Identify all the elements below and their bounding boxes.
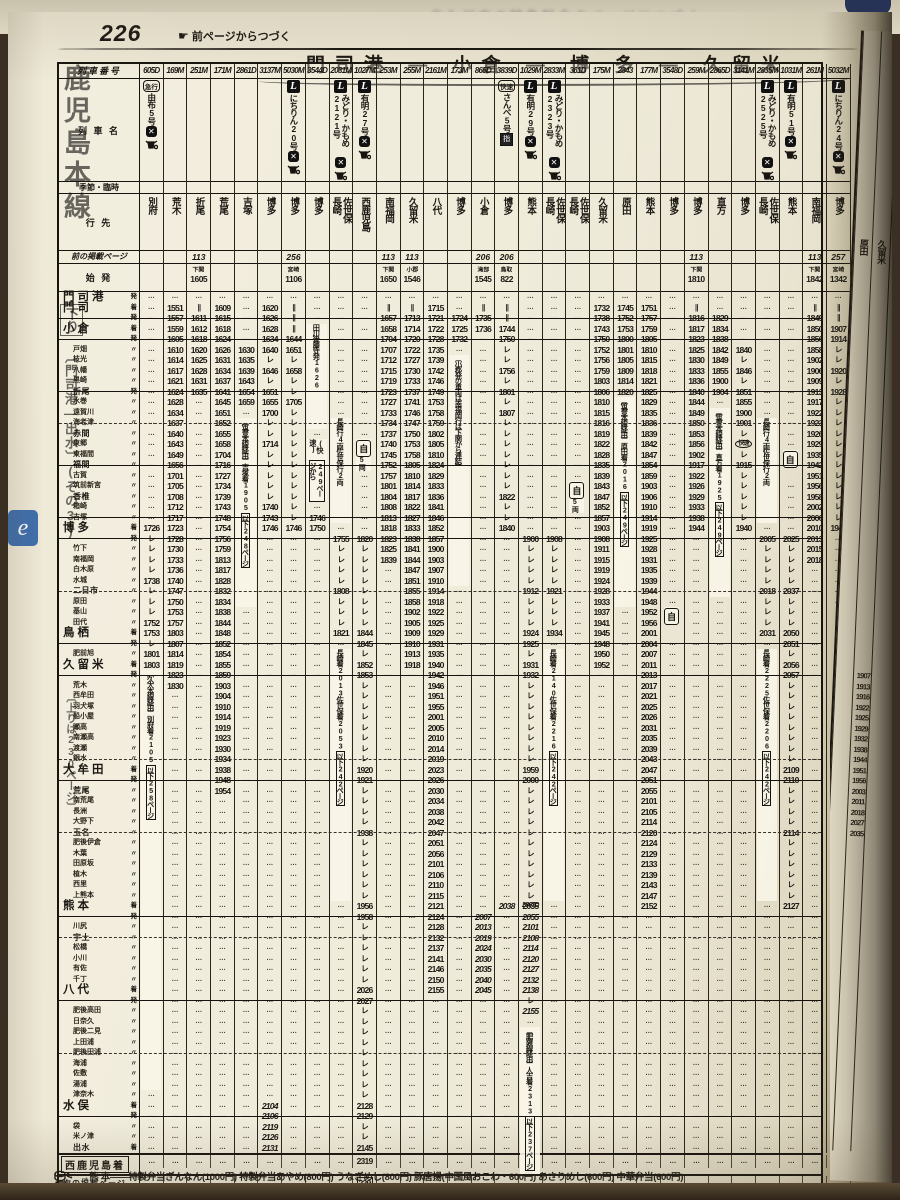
time-cell: …: [187, 807, 210, 818]
time-cell: 1643: [164, 439, 187, 450]
time-cell: 1956: [803, 481, 826, 492]
time-cell: …: [803, 1027, 826, 1038]
time-cell: …: [803, 744, 826, 755]
destination-text: 熊本: [526, 197, 536, 251]
season-cell: [140, 182, 163, 194]
train-column: 2865D直方……1829183418381842184918551900190…: [709, 64, 733, 1153]
time-cell: …: [732, 985, 755, 996]
group-rule-dashed: [59, 591, 821, 592]
time-cell: …: [235, 324, 258, 335]
time-cell: レ: [780, 807, 803, 818]
time-cell: 1854: [211, 649, 234, 660]
time-cell: 2133: [637, 859, 660, 870]
time-cell: …: [543, 1069, 566, 1080]
arrival-departure-mark: 〃: [131, 450, 138, 461]
train-name-box: [803, 79, 826, 182]
time-cell: 1646: [258, 366, 281, 377]
time-cell: 2155: [519, 1006, 542, 1017]
time-cell: …: [495, 1027, 518, 1038]
station-row: 水巻〃: [59, 397, 139, 408]
time-cell: …: [401, 922, 424, 933]
time-cell: …: [756, 975, 779, 986]
time-cell: 1753: [424, 397, 447, 408]
time-cell: …: [756, 1006, 779, 1017]
time-cell: …: [495, 1143, 518, 1154]
prev-page-cell: [519, 251, 542, 264]
time-cell: 1752: [140, 618, 163, 629]
time-cell: 1926: [803, 429, 826, 440]
time-cell: レ: [732, 481, 755, 492]
time-cell: 1817: [211, 565, 234, 576]
time-cell: 1750: [306, 523, 329, 534]
season-cell: [661, 182, 684, 194]
prev-page-cell: [661, 251, 684, 264]
time-cell: …: [330, 1059, 353, 1070]
time-cell: …: [566, 859, 589, 870]
arrival-departure-mark: 〃: [131, 744, 138, 755]
time-cell: レ: [353, 607, 376, 618]
time-column-body: …∥17131714172017221727173017331737174117…: [401, 292, 424, 1153]
time-cell: …: [780, 1080, 803, 1091]
time-cell: …: [685, 544, 708, 555]
time-cell: …: [637, 1143, 660, 1154]
time-cell: …: [685, 880, 708, 891]
time-cell: …: [756, 408, 779, 419]
time-cell: 2138: [519, 985, 542, 996]
time-cell: …: [756, 1069, 779, 1080]
time-cell: …: [330, 954, 353, 965]
final-arrival-cell: …: [164, 1155, 188, 1168]
time-cell: …: [235, 964, 258, 975]
time-cell: 2143: [637, 880, 660, 891]
time-column-body: …∥17351736…………………………………………………………………………………: [472, 292, 495, 1153]
station-row: 西里〃: [59, 880, 139, 891]
station-name: 渡瀬: [73, 744, 87, 755]
time-cell: 1746: [424, 376, 447, 387]
arrival-departure-mark: 〃: [131, 922, 138, 933]
prev-page-cell: [330, 251, 353, 264]
time-cell: …: [566, 408, 589, 419]
time-cell: …: [306, 807, 329, 818]
time-cell: …: [709, 1101, 732, 1112]
time-cell: …: [187, 607, 210, 618]
time-cell: …: [258, 891, 281, 902]
destination-text: 西鹿児島: [360, 197, 370, 251]
time-cell: …: [614, 1027, 637, 1038]
origin-cell: [258, 264, 281, 292]
time-cell: レ: [519, 649, 542, 660]
train-column: 175M久留米…17321738174317501752175617591803…: [590, 64, 614, 1153]
station-row: 有佐〃: [59, 964, 139, 975]
time-cell: 1841: [424, 502, 447, 513]
time-cell: …: [566, 292, 589, 303]
time-cell: 1859: [637, 471, 660, 482]
time-cell: …: [803, 723, 826, 734]
time-cell: 2035: [472, 964, 495, 975]
time-cell: 2101: [637, 796, 660, 807]
route-note: 長崎行4両佐世保行2両: [331, 418, 351, 523]
time-cell: 1751: [637, 303, 660, 314]
time-cell: 1715: [377, 366, 400, 377]
route-note: 長崎行4両佐世保行2両: [757, 418, 777, 523]
time-cell: …: [637, 943, 660, 954]
time-cell: …: [566, 1006, 589, 1017]
time-cell: …: [472, 345, 495, 356]
origin-cell: [424, 264, 447, 292]
prev-page-cell: [566, 251, 589, 264]
time-cell: …: [780, 502, 803, 513]
time-cell: …: [614, 1069, 637, 1080]
time-cell: …: [685, 838, 708, 849]
final-arrival-cell: …: [330, 1155, 354, 1168]
time-cell: 1849: [685, 408, 708, 419]
time-cell: …: [401, 1090, 424, 1101]
time-cell: …: [709, 859, 732, 870]
time-cell: …: [661, 817, 684, 828]
time-cell: …: [495, 796, 518, 807]
time-cell: …: [401, 1038, 424, 1049]
time-cell: …: [803, 607, 826, 618]
arrival-departure-mark: 着: [131, 523, 138, 534]
time-cell: …: [590, 691, 613, 702]
station-row: 黒崎〃: [59, 376, 139, 387]
train-name: 有明51号: [786, 94, 795, 135]
time-cell: …: [590, 681, 613, 692]
time-cell: …: [401, 954, 424, 965]
time-cell: …: [211, 954, 234, 965]
time-cell: …: [614, 870, 637, 881]
time-cell: …: [448, 838, 471, 849]
final-arrival-cell: …: [709, 1155, 733, 1168]
time-cell: レ: [353, 943, 376, 954]
time-cell: …: [543, 954, 566, 965]
destination-cell: 博多: [282, 194, 305, 251]
time-cell: …: [590, 1038, 613, 1049]
time-cell: …: [803, 565, 826, 576]
time-cell: 1626: [211, 345, 234, 356]
time-cell: …: [614, 1122, 637, 1133]
time-cell: レ: [732, 355, 755, 366]
time-cell: レ: [756, 618, 779, 629]
time-cell: …: [685, 859, 708, 870]
group-rule: [59, 465, 821, 466]
time-cell: …: [543, 1006, 566, 1017]
time-cell: …: [377, 1069, 400, 1080]
train-name-cell: [164, 79, 187, 182]
station-row: 八幡〃: [59, 366, 139, 377]
time-cell: …: [164, 985, 187, 996]
train-name-cell: [590, 79, 613, 182]
arrival-departure-mark: 〃: [131, 1027, 138, 1038]
time-cell: …: [709, 765, 732, 776]
time-cell: …: [187, 660, 210, 671]
time-cell: …: [140, 345, 163, 356]
group-rule: [59, 1116, 821, 1117]
final-arrival-cell: …: [187, 1155, 211, 1168]
time-cell: レ: [495, 481, 518, 492]
time-cell: …: [519, 502, 542, 513]
time-cell: …: [732, 943, 755, 954]
time-cell: …: [377, 891, 400, 902]
l-limited-express-icon: L: [287, 80, 300, 93]
time-cell: …: [448, 723, 471, 734]
buffet-pot-icon: [145, 137, 158, 150]
time-cell: 1727: [377, 397, 400, 408]
station-name: 木葉: [73, 849, 87, 860]
time-column-body: …174517521753180018011805180918141820…………: [614, 292, 637, 1153]
station-row: 東福間〃: [59, 450, 139, 461]
time-cell: レ: [780, 880, 803, 891]
destination: 別府: [140, 194, 163, 251]
facing-destination: 久留米: [875, 239, 889, 264]
time-cell: [780, 471, 803, 482]
time-cell: …: [424, 292, 447, 303]
time-cell: …: [661, 408, 684, 419]
time-cell: …: [164, 880, 187, 891]
time-cell: 2024: [472, 943, 495, 954]
time-cell: …: [401, 691, 424, 702]
train-column: 2861D吉塚……………163016351639164316541659……………: [235, 64, 259, 1153]
station-row: 佐敷〃: [59, 1069, 139, 1080]
time-cell: …: [306, 723, 329, 734]
time-cell: …: [235, 649, 258, 660]
destination: 原田: [614, 194, 637, 251]
time-cell: 1732: [590, 303, 613, 314]
facing-time-cell: 1907: [855, 671, 872, 682]
time-cell: 1924: [590, 576, 613, 587]
time-cell: 1651: [211, 408, 234, 419]
time-cell: …: [187, 492, 210, 503]
arrival-departure-mark: 〃: [131, 849, 138, 860]
time-cell: …: [401, 702, 424, 713]
time-cell: 1700: [258, 408, 281, 419]
time-cell: …: [306, 1080, 329, 1091]
time-cell: …: [566, 597, 589, 608]
arrival-departure-mark: 〃: [131, 1038, 138, 1049]
time-cell: …: [661, 481, 684, 492]
time-cell: 1651: [282, 345, 305, 356]
time-cell: レ: [353, 565, 376, 576]
destination: 博多: [448, 194, 471, 251]
time-cell: …: [187, 471, 210, 482]
time-cell: …: [472, 838, 495, 849]
time-cell: …: [709, 292, 732, 303]
time-cell: …: [306, 765, 329, 776]
time-cell: 1944: [685, 523, 708, 534]
time-cell: …: [164, 292, 187, 303]
station-row: 水俣着: [59, 1101, 139, 1112]
time-cell: 2119: [258, 1122, 281, 1133]
time-cell: …: [353, 376, 376, 387]
time-cell: …: [732, 1132, 755, 1143]
time-cell: …: [732, 576, 755, 587]
arrival-departure-mark: 〃: [131, 943, 138, 954]
time-cell: …: [780, 439, 803, 450]
time-column-body: …173217381743175017521756175918031806181…: [590, 292, 613, 1153]
destination-cell: 博多: [495, 194, 518, 251]
station-name: 八代: [63, 985, 92, 996]
time-cell: 1902: [401, 607, 424, 618]
arrival-departure-mark: 〃: [131, 712, 138, 723]
time-cell: …: [401, 765, 424, 776]
train-name-box: Lみどり・かもめ2323号✕: [543, 79, 566, 182]
time-cell: …: [685, 576, 708, 587]
time-cell: …: [187, 702, 210, 713]
arrival-departure-mark: 〃: [131, 618, 138, 629]
time-cell: …: [756, 1090, 779, 1101]
time-cell: …: [590, 964, 613, 975]
final-arrival-cell: …: [803, 1155, 827, 1168]
time-cell: …: [164, 807, 187, 818]
time-cell: …: [495, 786, 518, 797]
time-cell: …: [732, 733, 755, 744]
time-cell: 1931: [519, 660, 542, 671]
time-cell: …: [661, 355, 684, 366]
route-note: 〔筑豊本線経由〕吉塚着1905以下248ページ: [236, 418, 256, 607]
time-cell: …: [543, 397, 566, 408]
time-cell: …: [803, 870, 826, 881]
route-note-text: (快速): [310, 439, 324, 458]
time-cell: …: [685, 660, 708, 671]
time-cell: …: [187, 964, 210, 975]
station-row: 西牟田〃: [59, 691, 139, 702]
train-number: 361D: [566, 64, 589, 79]
time-cell: …: [235, 817, 258, 828]
arrival-departure-mark: 着: [131, 628, 138, 639]
time-cell: 1746: [401, 408, 424, 419]
route-note-text: 〔久大本線経由〕別府着2105: [147, 670, 154, 763]
time-cell: …: [258, 744, 281, 755]
rapid-service-badge: 快速: [735, 440, 751, 448]
time-cell: …: [685, 1017, 708, 1028]
time-cell: …: [661, 744, 684, 755]
time-cell: …: [377, 1080, 400, 1091]
time-cell: …: [709, 817, 732, 828]
time-cell: …: [448, 1027, 471, 1038]
destination-row-label-label: 行 先: [59, 194, 139, 250]
time-cell: レ: [353, 870, 376, 881]
time-cell: …: [614, 807, 637, 818]
time-cell: 1955: [424, 702, 447, 713]
time-cell: 1740: [164, 576, 187, 587]
time-cell: …: [211, 901, 234, 912]
destination-text: 博多: [668, 197, 678, 251]
time-cell: …: [709, 303, 732, 314]
non-reserved-cars-mark: 自: [664, 607, 679, 625]
time-cell: レ: [780, 870, 803, 881]
time-cell: …: [472, 859, 495, 870]
origin-cell: [732, 264, 755, 292]
time-cell: …: [377, 859, 400, 870]
time-cell: …: [211, 1038, 234, 1049]
time-cell: …: [330, 1132, 353, 1143]
time-cell: …: [685, 1027, 708, 1038]
time-cell: 1637: [211, 376, 234, 387]
time-cell: レ: [519, 870, 542, 881]
time-cell: …: [566, 576, 589, 587]
station-name: 筑前新宮: [73, 481, 101, 492]
time-cell: …: [258, 807, 281, 818]
time-cell: 1844: [211, 618, 234, 629]
time-cell: …: [732, 1143, 755, 1154]
time-cell: …: [590, 954, 613, 965]
time-cell: …: [235, 1027, 258, 1038]
time-cell: …: [306, 544, 329, 555]
time-cell: 1631: [187, 376, 210, 387]
destination-text: 小倉: [478, 197, 488, 251]
time-cell: 1858: [401, 597, 424, 608]
time-cell: …: [732, 849, 755, 860]
prev-page-cell: 206: [495, 251, 518, 264]
time-cell: …: [187, 1101, 210, 1112]
time-cell: …: [661, 492, 684, 503]
train-name-box: Lにちりん20号✕: [282, 79, 305, 182]
destination-cell: 原田: [614, 194, 637, 251]
time-column-body: ……………………………………………………………1908レレレレ1921レレレ19…: [543, 292, 566, 1153]
time-cell: …: [732, 1069, 755, 1080]
time-cell: …: [235, 859, 258, 870]
season-cell: [566, 182, 589, 194]
station-name: 赤間: [73, 429, 90, 440]
time-cell: …: [424, 1132, 447, 1143]
final-arrival-cell: …: [756, 1155, 780, 1168]
time-cell: …: [590, 1132, 613, 1143]
station-name: 米ノ津: [73, 1132, 94, 1143]
time-cell: ∥: [685, 303, 708, 314]
station-row: 大野下〃: [59, 817, 139, 828]
origin-station: 下関: [189, 265, 209, 274]
time-cell: …: [353, 355, 376, 366]
time-cell: …: [235, 796, 258, 807]
time-cell: 2011: [637, 660, 660, 671]
time-cell: …: [803, 292, 826, 303]
train-name-cell: [637, 79, 660, 182]
time-cell: …: [803, 1006, 826, 1017]
time-cell: 1951: [803, 471, 826, 482]
time-cell: …: [756, 366, 779, 377]
time-cell: …: [401, 870, 424, 881]
time-cell: 1940: [732, 523, 755, 534]
train-number: 3137M: [258, 64, 281, 79]
time-cell: …: [756, 292, 779, 303]
time-cell: レ: [780, 565, 803, 576]
time-cell: …: [164, 796, 187, 807]
time-cell: …: [330, 1080, 353, 1091]
time-cell: …: [377, 817, 400, 828]
time-cell: …: [709, 807, 732, 818]
group-rule: [59, 517, 821, 518]
time-cell: …: [566, 723, 589, 734]
time-cell: …: [756, 355, 779, 366]
time-cell: 1822: [590, 439, 613, 450]
time-cell: …: [661, 786, 684, 797]
time-cell: …: [566, 702, 589, 713]
time-cell: …: [566, 1059, 589, 1070]
time-cell: …: [661, 712, 684, 723]
time-cell: …: [211, 985, 234, 996]
time-cell: …: [661, 1143, 684, 1154]
time-cell: …: [235, 1101, 258, 1112]
time-cell: …: [282, 691, 305, 702]
time-cell: レ: [780, 691, 803, 702]
station-name: 荒木: [73, 681, 87, 692]
time-cell: …: [590, 1006, 613, 1017]
time-cell: …: [282, 880, 305, 891]
time-cell: …: [732, 1006, 755, 1017]
time-cell: …: [590, 975, 613, 986]
time-cell: …: [282, 1122, 305, 1133]
time-cell: 1828: [590, 450, 613, 461]
